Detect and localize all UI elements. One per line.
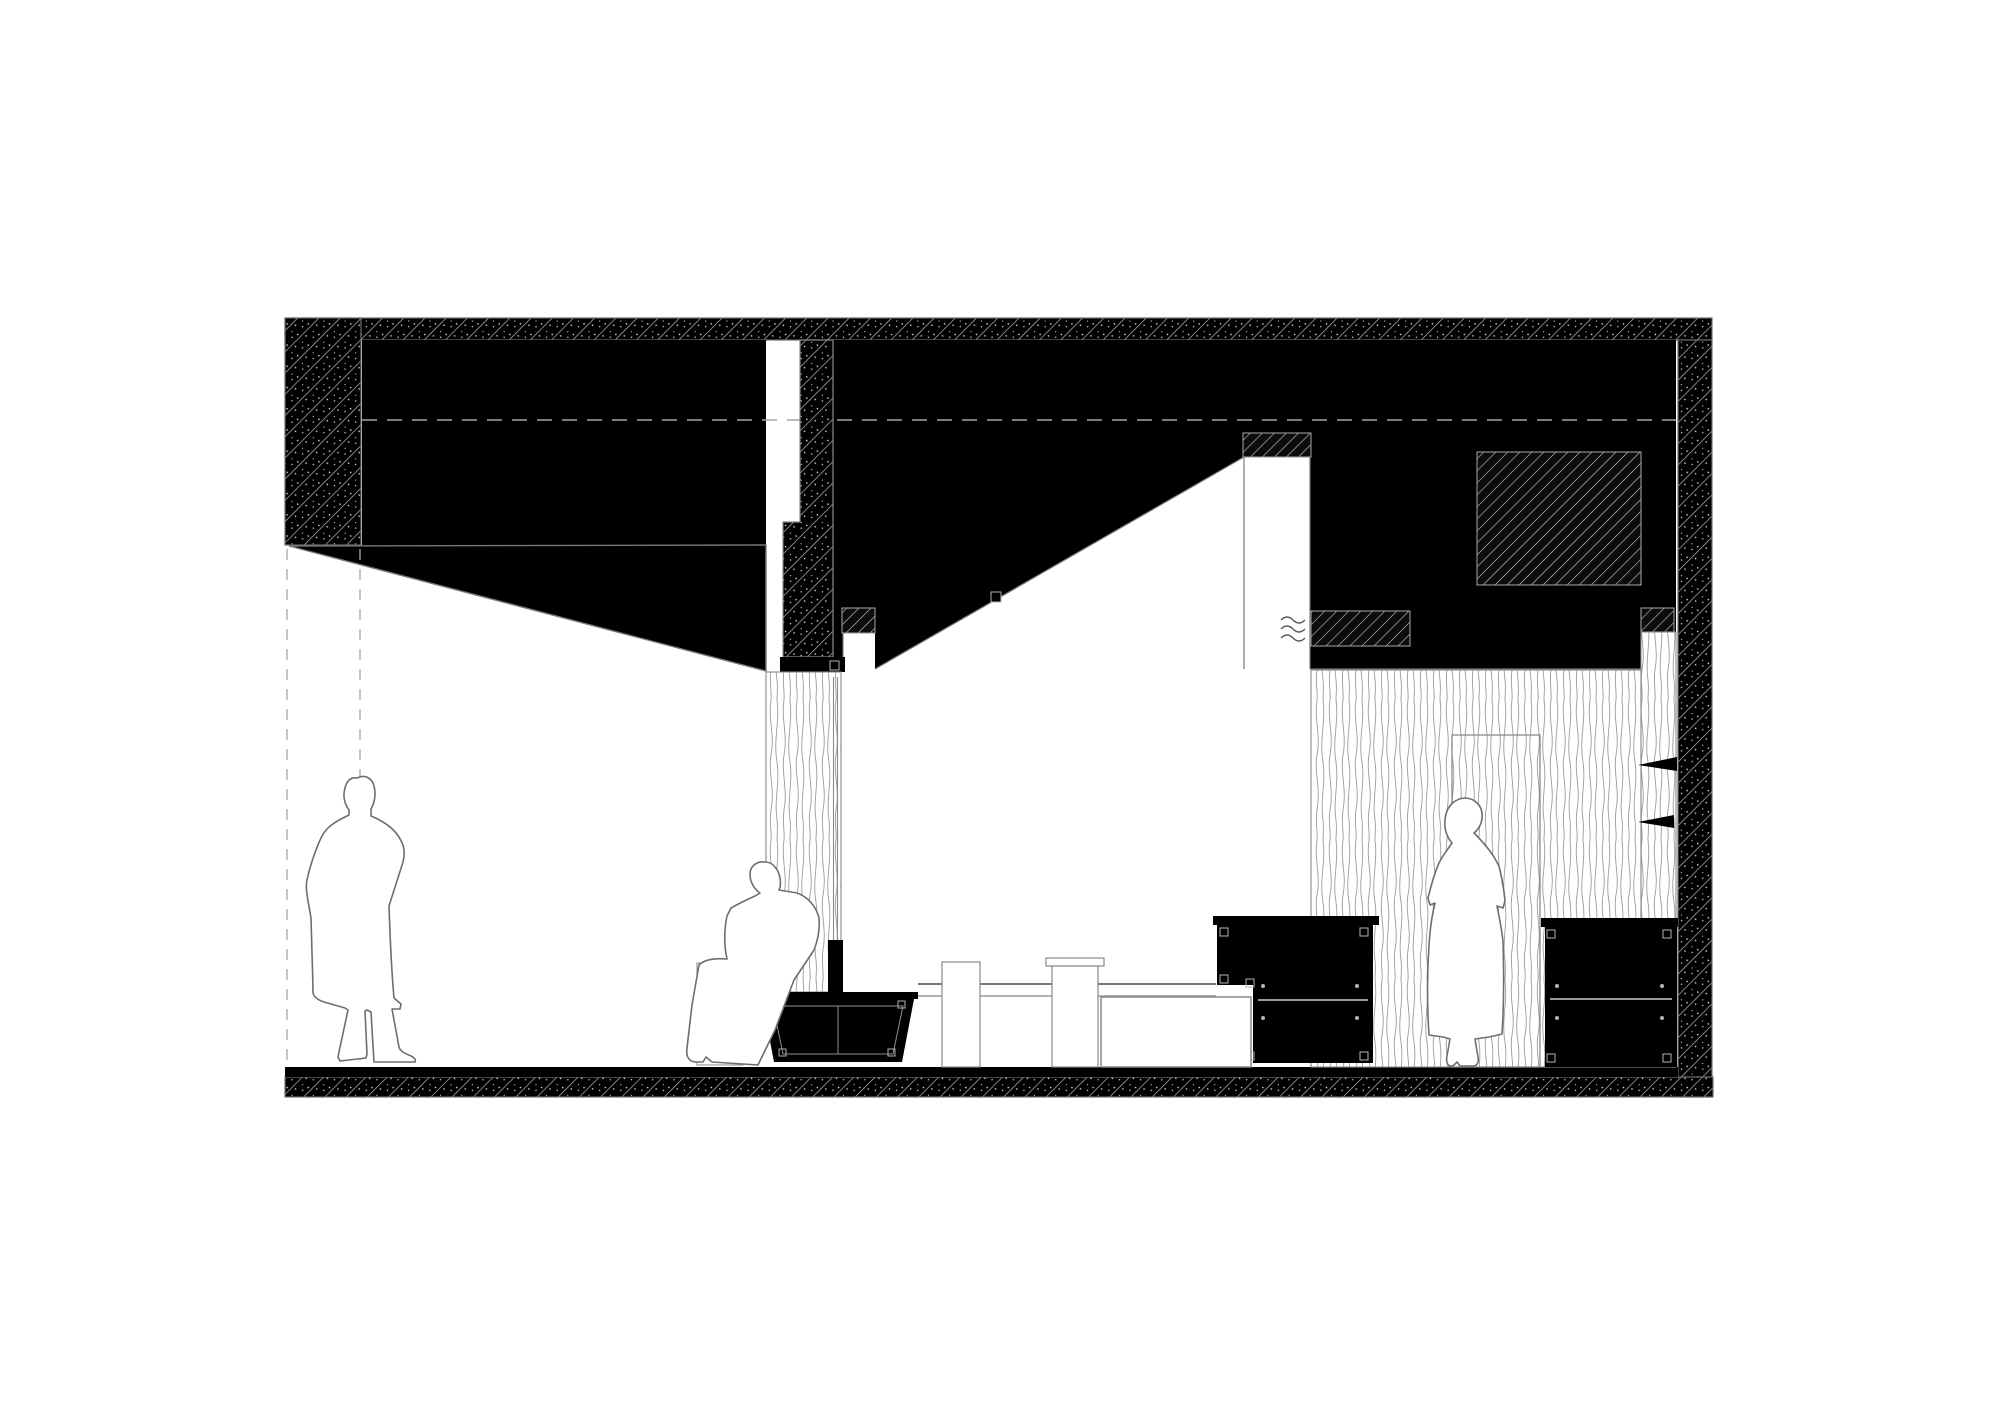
- floor-slab-hatch: [285, 1077, 1713, 1097]
- left-ceiling-slab: [362, 340, 766, 546]
- floor-finish-band: [285, 1067, 1678, 1077]
- roof-slab-hatch: [285, 318, 1712, 340]
- rail-top-connector: [830, 661, 839, 670]
- left-wall-hatch: [285, 318, 361, 545]
- partition-hatch-column: [783, 340, 833, 657]
- right-cabinet-body: [1545, 927, 1677, 1067]
- soffit-step-notch: [991, 592, 1001, 602]
- column-gap: [843, 633, 875, 669]
- l-cabinet-top-cap: [1213, 916, 1379, 925]
- right-cabinet: [1541, 918, 1678, 1067]
- table-leg-right: [1052, 966, 1098, 1067]
- corner-block-right: [1641, 608, 1674, 632]
- skylight-hatch-panel: [1477, 452, 1641, 585]
- column-head-block: [842, 608, 875, 633]
- duct-block-left-of-gap: [1243, 433, 1311, 457]
- duct-block-right-of-gap: [1311, 611, 1410, 646]
- right-wall-hatch: [1678, 340, 1712, 1097]
- standing-man-figure: [306, 776, 415, 1062]
- rail-bottom-post: [828, 940, 843, 997]
- ceiling-gap: [1244, 457, 1310, 669]
- table-leg-left: [942, 962, 980, 1067]
- right-cabinet-top-cap: [1541, 918, 1678, 927]
- bench-panel: [1101, 997, 1251, 1067]
- table-leg-right-cap: [1046, 958, 1104, 966]
- section-drawing-canvas: [0, 0, 2000, 1414]
